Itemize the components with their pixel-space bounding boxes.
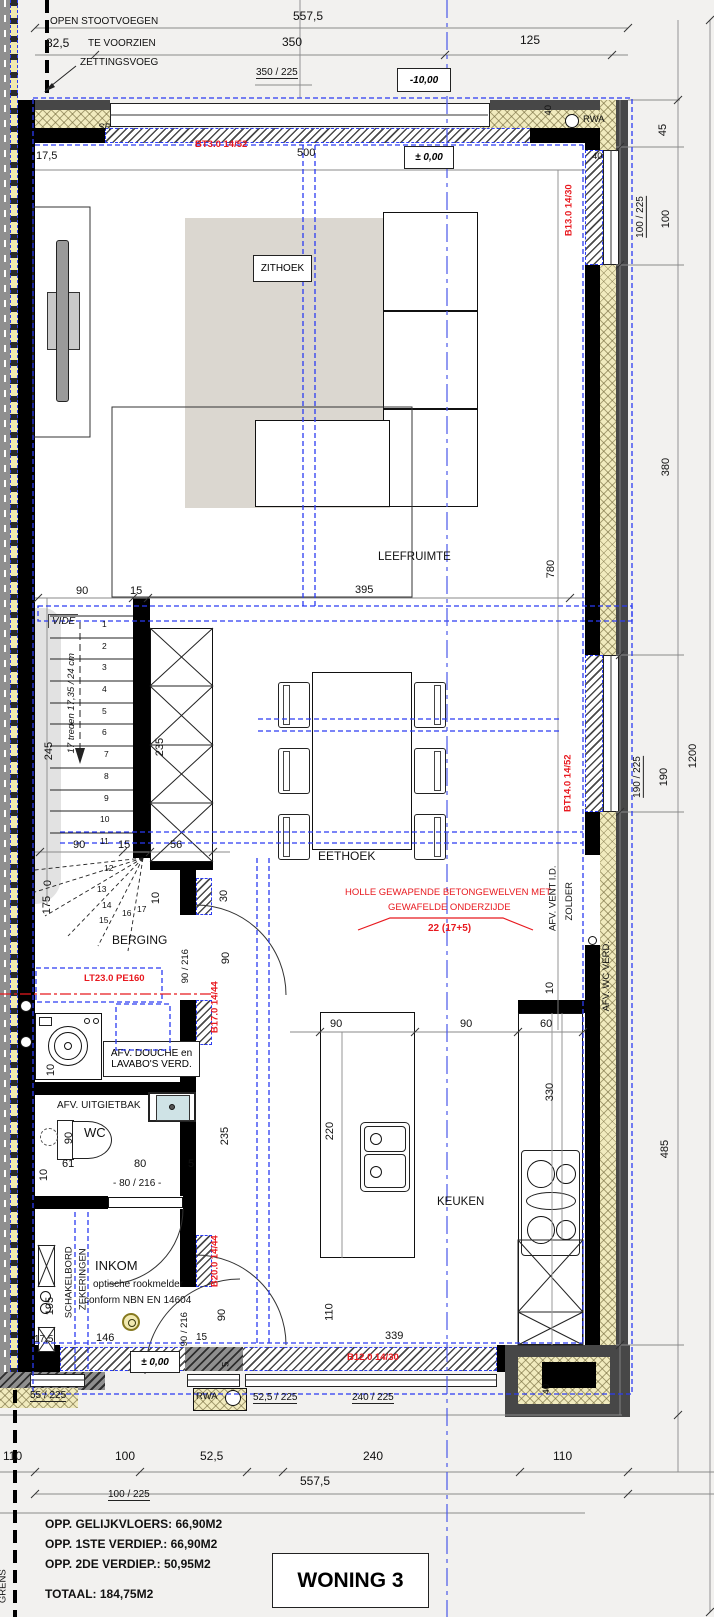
dim-top-125: 125 (520, 34, 540, 47)
dim-b-total: 557,5 (300, 1475, 330, 1488)
top-lintel-hatch (105, 128, 585, 143)
dim-780: 780 (545, 560, 557, 578)
dim-b110a: 110 (3, 1450, 22, 1463)
sofa-seat-1 (383, 212, 478, 311)
burner-4 (556, 1220, 576, 1240)
note-open-stootvoegen-1: OPEN STOOTVOEGEN (50, 16, 158, 27)
dim-k90b: 90 (460, 1018, 472, 1030)
dim-i175: 17,5 (34, 1334, 53, 1345)
dim-mid395: 395 (355, 584, 373, 596)
inkom-wall (180, 1209, 196, 1287)
dim-s90: 90 (73, 839, 85, 851)
chair-3 (278, 814, 310, 860)
note-rwa-bottom: RWA (196, 1392, 218, 1402)
area-line-3: OPP. 2DE VERDIEP.: 50,95M2 (45, 1558, 211, 1571)
wall-sleeve-2 (20, 1036, 32, 1048)
dim-wc5: 5 (188, 1158, 194, 1170)
area-line-1: OPP. GELIJKVLOERS: 66,90M2 (45, 1518, 222, 1531)
wm-drum-core (64, 1042, 72, 1050)
dim-bwin1: 55 / 225 (30, 1390, 66, 1402)
dim-s0: 0 (42, 880, 54, 886)
stair-wall (133, 598, 150, 858)
rwa-roof-vent-top (565, 114, 579, 128)
level-ground: ± 0,00 (415, 152, 443, 163)
level-entry: ± 0,00 (141, 1357, 169, 1368)
dim-i5: 5 (221, 1362, 231, 1367)
dim-bwin2: 52,5 / 225 (253, 1392, 297, 1404)
dim-i90: 90 (216, 1309, 228, 1321)
afv-douche-line2: LAVABO'S VERD. (111, 1059, 191, 1070)
room-keuken: KEUKEN (437, 1196, 484, 1209)
note-rookmelder-1: optische rookmelder (93, 1279, 183, 1290)
dim-rwin2: 190 / 225 (632, 756, 644, 798)
party-wall (18, 100, 35, 1390)
room-wc: WC (84, 1126, 106, 1140)
bottom-window1-frame (30, 1374, 85, 1387)
tread-2: 2 (102, 642, 107, 651)
rwa-roof-vent-bottom (225, 1390, 241, 1406)
dim-top-825: 82,5 (46, 37, 69, 50)
room-berging: BERGING (112, 934, 167, 947)
dim-s235: 235 (154, 738, 166, 756)
dim-k60: 60 (540, 1018, 552, 1030)
bottom-door-pier (185, 1347, 243, 1371)
note-grens: GRENS (0, 1569, 9, 1603)
note-afv-uitgietbak: AFV. UITGIETBAK (57, 1100, 141, 1111)
note-stair: 17 treden 17,35 / 24 cm (67, 653, 77, 753)
note-zettingsvoeg: ZETTINGSVOEG (80, 57, 158, 68)
tread-9: 9 (104, 794, 109, 803)
area-line-2: OPP. 1STE VERDIEP.: 66,90M2 (45, 1538, 217, 1551)
cooktop-grill (526, 1192, 576, 1210)
right-wall-duct (588, 936, 597, 945)
tread-4: 4 (102, 685, 107, 694)
bottom-door-frame (187, 1374, 240, 1387)
room-inkom: INKOM (95, 1259, 138, 1273)
tread-16: 16 (122, 909, 131, 918)
room-zithoek: ZITHOEK (261, 263, 304, 274)
tread-17: 17 (137, 905, 146, 914)
note-rwa-top: RWA (583, 115, 605, 125)
dim-b100: 100 (115, 1450, 135, 1463)
note-zekeringen: ZEKERINGEN (79, 1248, 89, 1310)
party-joint-strip (10, 0, 18, 1408)
dim-40-top: 40 (544, 105, 554, 116)
zettingsvoeg-arrow (44, 66, 76, 92)
level-entry-box: ± 0,00 (130, 1351, 180, 1373)
room-eethoek: EETHOEK (318, 850, 375, 863)
dim-500: 500 (297, 147, 315, 159)
dim-r100: 100 (660, 210, 672, 228)
dim-jog: 17,5 (36, 150, 57, 162)
dim-k10: 10 (544, 982, 556, 994)
bottom-lintel-hatch (60, 1347, 497, 1371)
dim-wm10: 10 (45, 1064, 57, 1076)
right-window2-reveal (585, 655, 603, 812)
note-afv-wc: AFV. WC VERD. (602, 941, 612, 1011)
wc-door-leaf (108, 1197, 183, 1208)
dim-40-window: 40 (592, 152, 603, 162)
dim-top-window: 350 / 225 (256, 67, 298, 79)
level-ground-box: ± 0,00 (404, 146, 454, 169)
red-slab1: HOLLE GEWAPENDE BETONGEWELVEN MET (345, 888, 551, 898)
dim-wc61: 61 (62, 1158, 74, 1170)
burner-3 (527, 1216, 555, 1244)
floor-drain (40, 1128, 58, 1146)
wall-sleeve-1 (20, 1000, 32, 1012)
tread-5: 5 (102, 707, 107, 716)
dim-s15: 15 (118, 839, 130, 851)
level-street: -10,00 (410, 75, 438, 86)
dim-s30: 30 (218, 890, 230, 902)
zithoek-label-box: ZITHOEK (253, 255, 312, 282)
right-window1-reveal (585, 150, 603, 265)
dim-s175: 175 (41, 896, 53, 914)
dim-s90b: 90 (220, 952, 232, 964)
dim-top-350: 350 (282, 36, 302, 49)
tv-screen (56, 240, 69, 402)
sofa-chaise (255, 420, 390, 507)
tread-15: 15 (99, 916, 108, 925)
tread-1: 1 (102, 620, 107, 629)
right-wall-duct-gap (585, 855, 600, 945)
right-window1-frame (603, 150, 619, 265)
dim-k110: 110 (324, 1303, 336, 1321)
neighbour-wall-centerline (4, 0, 6, 1408)
dim-r1200: 1200 (687, 744, 699, 768)
note-zolder: ZOLDER (565, 882, 575, 921)
dim-k90a: 90 (330, 1018, 342, 1030)
chair-6 (414, 814, 446, 860)
dim-s56: 56 (170, 839, 182, 851)
top-window-frame (110, 103, 490, 127)
chair-2 (278, 748, 310, 794)
tread-11: 11 (100, 837, 109, 846)
tread-12: 12 (104, 864, 113, 873)
dim-i195: 195 (44, 1297, 56, 1315)
sofa-seat-2 (383, 311, 478, 409)
dim-b-party: 100 / 225 (108, 1489, 150, 1501)
tread-7: 7 (104, 750, 109, 759)
chair-5 (414, 748, 446, 794)
sofa-seat-3 (383, 409, 478, 507)
red-b17: B17.0 14/44 (211, 981, 221, 1033)
tread-13: 13 (97, 885, 106, 894)
dim-k330: 330 (544, 1083, 556, 1101)
wm-panel (39, 1017, 52, 1026)
tread-3: 3 (102, 663, 107, 672)
dim-wc90: 90 (63, 1132, 75, 1144)
red-lt23: LT23.0 PE160 (84, 974, 145, 984)
elec-panel-top (38, 1245, 55, 1287)
note-vide: VIDE (48, 614, 78, 628)
dim-b525: 52,5 (200, 1450, 223, 1463)
chair-4 (414, 682, 446, 728)
dim-wcdoor: - 80 / 216 - (113, 1178, 161, 1189)
red-b20: B20.0 14/44 (211, 1235, 221, 1287)
dim-r45: 45 (657, 124, 669, 136)
dim-rwin1: 100 / 225 (635, 196, 647, 238)
red-slab2: GEWAFELDE ONDERZIJDE (388, 903, 511, 913)
dim-i146: 146 (96, 1332, 114, 1344)
wc-south-wall (35, 1196, 108, 1209)
tread-14: 14 (102, 901, 111, 910)
wm-knob-1 (84, 1018, 90, 1024)
floor-plan: AFV. DOUCHE en LAVABO'S VERD. (0, 0, 714, 1617)
dim-b110b: 110 (553, 1450, 572, 1463)
note-afv-vent: AFV. VENT I.D. (549, 865, 559, 930)
red-bt14: BT14.0 14/52 (564, 754, 574, 812)
top-wall-outer-left (35, 100, 110, 110)
dim-40-bottom: 40 (542, 1384, 552, 1395)
berging-wall-a (180, 870, 196, 915)
tread-10: 10 (100, 815, 109, 824)
wm-knob-2 (93, 1018, 99, 1024)
dim-mid15: 15 (130, 585, 142, 597)
dim-idoor: 90 / 216 (180, 1312, 190, 1346)
dim-k220: 220 (324, 1122, 336, 1140)
dim-s10: 10 (150, 892, 162, 904)
dim-bwin3: 240 / 225 (352, 1392, 394, 1404)
dim-r190: 190 (658, 768, 670, 786)
island-drain (370, 1166, 382, 1178)
title-box: WONING 3 (272, 1553, 429, 1608)
dim-top-total: 557,5 (293, 10, 323, 23)
bottom-window3-frame (245, 1374, 497, 1387)
afv-douche-line1: AFV. DOUCHE en (111, 1048, 192, 1059)
area-total: TOTAAL: 184,75M2 (45, 1588, 153, 1601)
level-street-box: -10,00 (397, 68, 451, 92)
dim-wc80: 80 (134, 1158, 146, 1170)
room-leefruimte: LEEFRUIMTE (378, 551, 451, 564)
tread-8: 8 (104, 772, 109, 781)
red-b12: B12.0 14/30 (347, 1353, 399, 1363)
dining-table (312, 672, 412, 850)
right-window2-frame (603, 655, 619, 812)
dim-r380: 380 (660, 458, 672, 476)
dim-wc10: 10 (38, 1169, 50, 1181)
red-b13: B13.0 14/30 (565, 184, 575, 236)
dim-i15: 15 (196, 1332, 207, 1343)
tread-6: 6 (102, 728, 107, 737)
berging-door-pier-top (196, 878, 212, 915)
afv-douche-note-box: AFV. DOUCHE en LAVABO'S VERD. (103, 1041, 200, 1077)
red-slab3: 22 (17+5) (428, 923, 471, 934)
smoke-detector-core (128, 1319, 136, 1327)
dim-b240: 240 (363, 1450, 383, 1463)
red-bt3: BT3.0 14/52 (195, 140, 247, 150)
chair-1 (278, 682, 310, 728)
dim-wc235: 235 (219, 1127, 231, 1145)
note-open-stootvoegen-2: TE VOORZIEN (88, 38, 156, 49)
dim-r485: 485 (659, 1140, 671, 1158)
uitgietbak-drain (169, 1104, 175, 1110)
top-wall-inner-left (35, 128, 105, 143)
note-sr: SR (98, 123, 111, 133)
wc-door-jamb (183, 1196, 196, 1209)
note-rookmelder-2: conform NBN EN 14604 (84, 1295, 191, 1306)
dim-k339: 339 (385, 1330, 403, 1342)
burner-1 (527, 1160, 555, 1188)
dim-sdoor: 90 / 216 (181, 949, 191, 983)
dim-mid90: 90 (76, 585, 88, 597)
island-faucet (370, 1133, 382, 1145)
kitchen-duct-wall (518, 1000, 585, 1013)
note-schakelbord: SCHAKELBORD (65, 1246, 75, 1318)
burner-2 (556, 1164, 576, 1184)
dim-s245: 245 (43, 742, 55, 760)
plan-title: WONING 3 (297, 1569, 403, 1593)
